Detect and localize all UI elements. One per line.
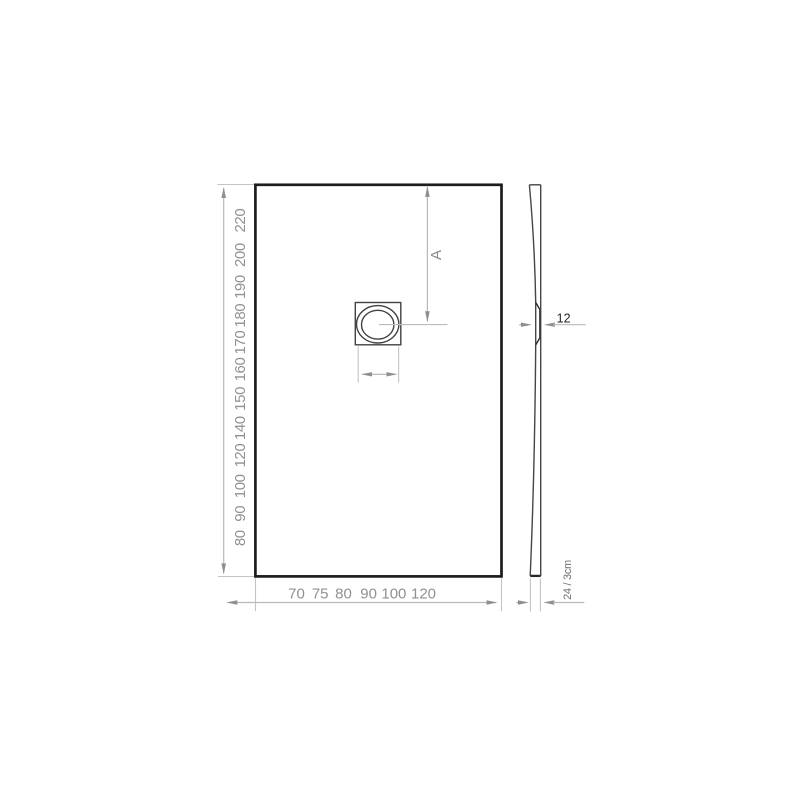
svg-text:90: 90 [232,506,249,522]
svg-text:80: 80 [232,530,249,546]
svg-text:12: 12 [557,311,571,325]
svg-text:170: 170 [232,331,249,355]
svg-text:120: 120 [411,586,436,603]
svg-text:220: 220 [232,209,249,233]
svg-text:150: 150 [232,387,249,411]
svg-text:70: 70 [288,586,305,603]
svg-text:120: 120 [232,444,249,468]
svg-text:80: 80 [335,586,352,603]
svg-text:190: 190 [232,275,249,299]
svg-text:24 / 3cm: 24 / 3cm [562,560,574,600]
svg-text:90: 90 [360,586,377,603]
svg-text:100: 100 [232,474,249,498]
svg-text:A: A [428,250,445,260]
svg-text:75: 75 [312,586,329,603]
svg-text:160: 160 [232,358,249,382]
svg-text:100: 100 [381,586,406,603]
svg-text:200: 200 [232,243,249,267]
svg-text:140: 140 [232,416,249,440]
svg-text:180: 180 [232,304,249,328]
